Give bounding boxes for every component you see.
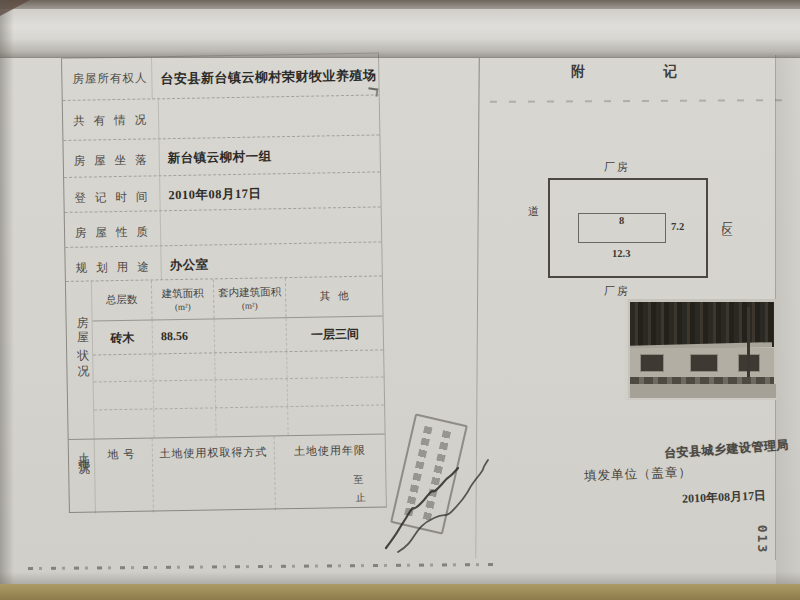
col-land-use-term-text: 土地使用年限	[294, 444, 366, 457]
land-status-section: 土地状况 地号 土地使用权取得方式 土地使用年限 至 止	[69, 434, 386, 514]
row-house-nature: 房屋性质	[65, 207, 382, 248]
table-surface-top	[0, 0, 800, 9]
col-other-text: 其他	[294, 289, 382, 305]
photo-shrub-line	[630, 377, 774, 384]
house-status-section: 房屋状况 总层数 建筑面积 (m²) 套内建筑面积 (m²) 其他	[66, 276, 385, 439]
term-end: 止	[356, 491, 366, 505]
other-value: 一层三间	[287, 316, 384, 350]
issuing-unit-label: 填发单位（盖章）	[584, 464, 693, 485]
row-owner: 房屋所有权人 台安县新台镇云柳村荣财牧业养殖场	[62, 53, 379, 101]
col-inner-area: 套内建筑面积 (m²)	[214, 278, 287, 318]
handwritten-signature	[380, 438, 495, 556]
col-building-area-unit: (m²)	[152, 301, 213, 312]
registration-form-table: 房屋所有权人 台安县新台镇云柳村荣财牧业养殖场 共有情况 房屋坐落 新台镇云柳村…	[61, 52, 387, 512]
structure-value: 砖木	[93, 320, 154, 354]
planned-use-value: 办公室	[161, 242, 382, 279]
co-ownership-label: 共有情况	[63, 99, 160, 140]
registration-date-value: 2010年08月17日	[160, 172, 381, 210]
col-inner-area-unit: (m²)	[214, 300, 285, 311]
row-co-ownership: 共有情况	[63, 95, 380, 141]
table-surface-bottom	[0, 584, 800, 600]
dimension-width-bottom: 12.3	[612, 248, 630, 259]
diagram-label-factory-bottom: 厂房	[604, 284, 630, 299]
photo-window	[640, 354, 664, 372]
house-status-values-row: 砖木 88.56 一层三间	[93, 316, 384, 355]
planned-use-label: 规划用途	[65, 246, 162, 281]
page-bottom-shadow	[0, 572, 800, 584]
location-label: 房屋坐落	[63, 139, 160, 177]
scanned-document-photo: 房屋所有权人 台安县新台镇云柳村荣财牧业养殖场 共有情况 房屋坐落 新台镇云柳村…	[0, 0, 800, 600]
inner-area-value	[215, 318, 288, 352]
photo-trees	[630, 302, 774, 347]
house-nature-value	[161, 207, 382, 245]
diagram-label-road: 道	[528, 204, 541, 219]
dimension-height: 7.2	[671, 221, 684, 232]
row-planned-use: 规划用途 办公室	[65, 242, 382, 282]
page-number: 013	[755, 525, 770, 554]
row-registration-date: 登记时间 2010年08月17日	[64, 172, 381, 213]
house-status-grid: 总层数 建筑面积 (m²) 套内建筑面积 (m²) 其他 砖木	[92, 276, 385, 438]
owner-value: 台安县新台镇云柳村荣财牧业养殖场	[152, 53, 379, 98]
diagram-label-factory-area: 厂区	[719, 213, 734, 221]
page-roll-edge	[0, 9, 800, 58]
location-value: 新台镇云柳村一组	[159, 135, 380, 175]
col-inner-area-text: 套内建筑面积	[214, 285, 285, 300]
col-other: 其他	[286, 276, 383, 316]
row-location: 房屋坐落 新台镇云柳村一组	[63, 135, 380, 178]
co-ownership-value	[159, 95, 380, 138]
house-nature-label: 房屋性质	[65, 211, 162, 247]
photo-left-shade	[0, 0, 14, 600]
col-total-floors: 总层数	[92, 280, 153, 320]
col-land-use-term: 土地使用年限 至 止	[275, 434, 386, 510]
registration-date-label: 登记时间	[64, 176, 161, 212]
photo-window	[690, 354, 718, 372]
land-status-grid: 地号 土地使用权取得方式 土地使用年限 至 止	[95, 434, 386, 513]
building-photo	[625, 299, 777, 400]
annex-title: 附记	[571, 63, 711, 81]
land-status-side-label: 土地状况	[69, 439, 96, 513]
col-land-right-method: 土地使用权取得方式	[153, 436, 276, 512]
issuing-authority-stamp-text: 台安县城乡建设管理局	[664, 437, 790, 463]
house-status-side-label: 房屋状况	[66, 281, 95, 438]
col-parcel-number: 地号	[95, 438, 154, 513]
page-right-margin	[776, 55, 800, 584]
term-start: 至	[353, 473, 363, 487]
fine-print-line	[28, 563, 498, 570]
dimension-width-top: 8	[619, 215, 624, 226]
col-building-area: 建筑面积 (m²)	[152, 279, 215, 319]
empty-row	[94, 406, 384, 439]
col-building-area-text: 建筑面积	[152, 286, 213, 301]
issue-date: 2010年08月17日	[682, 487, 767, 508]
diagram-label-factory-top: 厂房	[604, 160, 630, 175]
col-total-floors-text: 总层数	[92, 293, 151, 308]
annex-divider-dashes	[490, 99, 786, 103]
building-area-value: 88.56	[153, 319, 216, 353]
photo-ground	[630, 384, 776, 398]
house-status-header: 总层数 建筑面积 (m²) 套内建筑面积 (m²) 其他	[92, 276, 383, 321]
owner-label: 房屋所有权人	[62, 57, 153, 100]
